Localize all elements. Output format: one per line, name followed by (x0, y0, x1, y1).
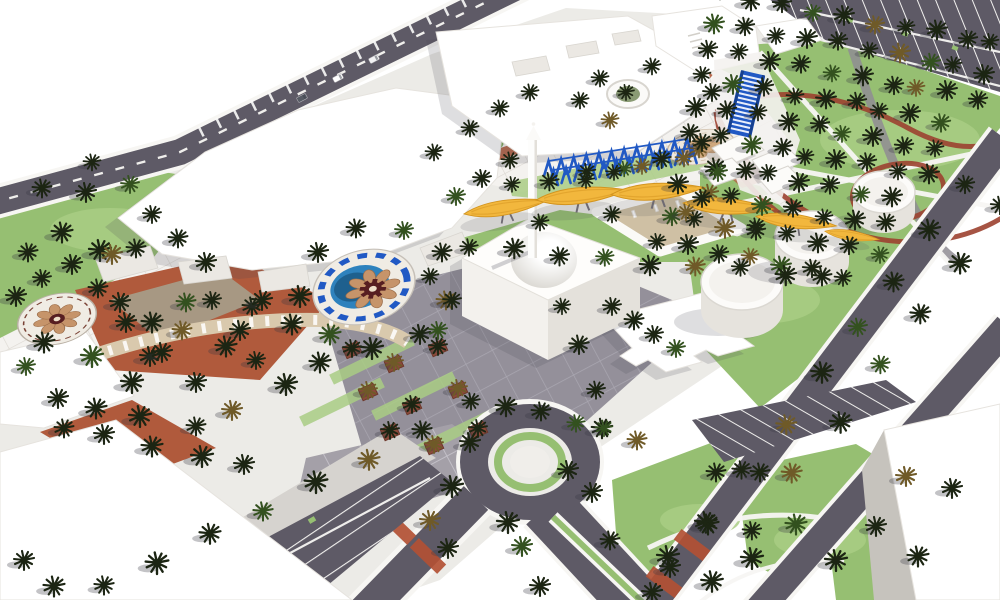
architectural-rendering (0, 0, 1000, 600)
site-plan-canvas (0, 0, 1000, 600)
